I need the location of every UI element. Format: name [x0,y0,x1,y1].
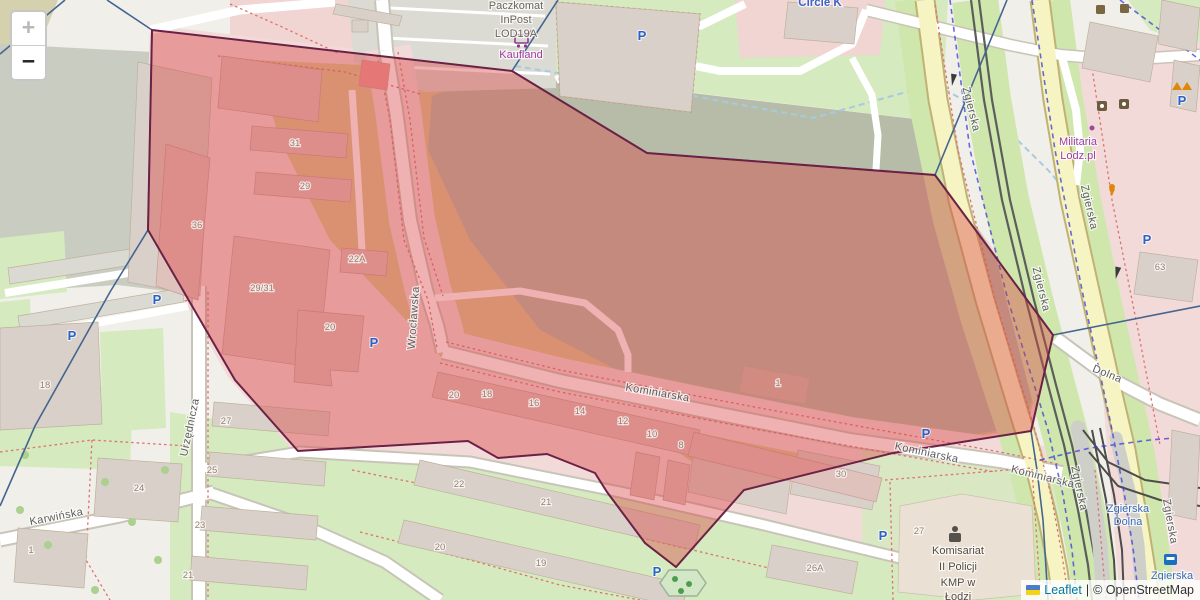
building-number: 12 [618,416,629,427]
poi-label: II Policji [939,561,977,573]
building-number: 24 [134,483,145,494]
parking-icon: P [879,528,888,543]
zoom-in-button[interactable]: + [12,12,45,46]
map-canvas[interactable]: WrocławskaKominiarskaKominiarskaKominiar… [0,0,1200,600]
poi-label: Paczkomat [489,0,543,12]
poi-label: Komisariat [932,545,984,557]
building-number: 1 [28,545,33,556]
building-number: 36 [192,220,203,231]
station-label: Dolna [1114,516,1144,528]
poi-label: Militaria [1059,136,1098,148]
building-number: 20 [435,542,446,553]
building-number: 16 [529,398,540,409]
leaflet-link[interactable]: Leaflet [1044,583,1082,597]
attribution-bar: Leaflet|© OpenStreetMap [1021,580,1200,600]
building-number: 14 [575,406,586,417]
building-number: 22A [349,254,367,265]
building-number: 10 [647,429,658,440]
parking-icon: P [68,328,77,343]
parking-icon: P [1178,93,1187,108]
building-number: 25 [207,465,218,476]
parking-icon: P [922,426,931,441]
parking-icon: P [1143,232,1152,247]
parking-icon: P [653,564,662,579]
building-number: 27 [221,416,232,427]
building-number: 20 [449,390,460,401]
building-number: 19 [536,558,547,569]
building-number: 29 [300,181,311,192]
poi-label: KMP w [941,577,976,589]
building-number: 22 [454,479,465,490]
building-number: 31 [290,138,301,149]
map-viewport[interactable]: WrocławskaKominiarskaKominiarskaKominiar… [0,0,1200,600]
poi-label: InPost [500,14,531,26]
building-number: 26A [807,563,825,574]
poi-label: Łodzi [945,591,971,600]
building-number: 8 [678,440,683,451]
building-number: 29/31 [250,283,274,294]
building-number: 23 [195,520,206,531]
building-number: 27 [914,526,925,537]
parking-icon: P [370,335,379,350]
building-number: 21 [183,570,194,581]
attribution-separator: | [1086,583,1089,597]
parking-icon: P [153,292,162,307]
building-number: 20 [325,322,336,333]
ukraine-flag-icon [1026,585,1040,595]
building-number: 30 [836,469,847,480]
building-number: 18 [482,389,493,400]
poi-label: Kaufland [499,49,542,61]
building-number: 18 [40,380,51,391]
building-number: 1 [775,378,780,389]
building-number: 63 [1155,262,1166,273]
zoom-control: + − [10,10,47,81]
parking-icon: P [638,28,647,43]
building-number: 21 [541,497,552,508]
station-label: Zgierska [1107,503,1150,515]
poi-label: Lodz.pl [1060,150,1095,162]
osm-attribution[interactable]: © OpenStreetMap [1093,583,1194,597]
poi-label: Circle K [798,0,842,9]
tram-stop-icon [1164,554,1177,565]
pond [660,570,706,596]
zoom-out-button[interactable]: − [12,46,45,79]
poi-label: LOD19A [495,28,538,40]
